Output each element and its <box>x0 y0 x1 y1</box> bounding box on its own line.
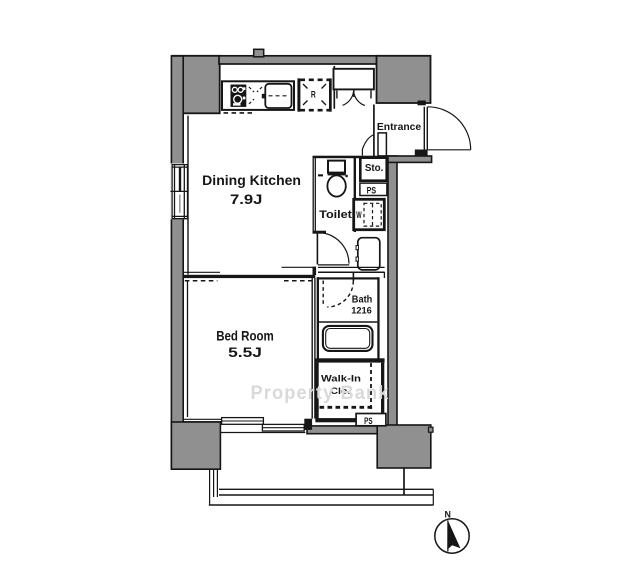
svg-text:PS: PS <box>367 185 377 196</box>
svg-text:Property Bank: Property Bank <box>251 382 390 404</box>
svg-text:Entrance: Entrance <box>377 122 422 133</box>
svg-text:PS: PS <box>364 416 373 427</box>
svg-text:Toilet: Toilet <box>319 209 352 221</box>
svg-text:Bed Room: Bed Room <box>216 328 274 343</box>
svg-text:5.5J: 5.5J <box>228 344 262 360</box>
svg-text:Sto.: Sto. <box>365 163 384 174</box>
svg-text:1216: 1216 <box>351 306 372 317</box>
svg-text:N: N <box>445 510 451 520</box>
svg-text:W: W <box>356 210 362 220</box>
svg-text:Bath: Bath <box>352 294 373 305</box>
svg-text:Dining Kitchen: Dining Kitchen <box>202 173 301 188</box>
svg-text:R: R <box>311 89 316 99</box>
svg-text:7.9J: 7.9J <box>230 191 262 207</box>
